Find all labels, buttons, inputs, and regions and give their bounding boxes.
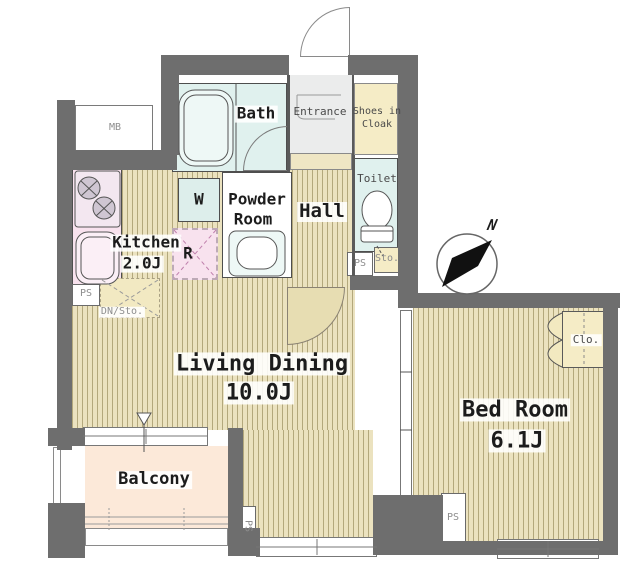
window-entry-marker bbox=[137, 413, 151, 452]
sliding-door-ticks bbox=[400, 372, 412, 430]
powder-sink-icon bbox=[229, 231, 285, 276]
closet-label: Clo. bbox=[571, 334, 602, 346]
toilet-icon bbox=[361, 191, 393, 256]
living-dining-size-label: 10.0J bbox=[224, 381, 294, 404]
shoes-in-cloak-label-line1: Shoes in bbox=[351, 107, 403, 118]
bath-label: Bath bbox=[235, 106, 278, 123]
powder-room-label-line1: Powder bbox=[226, 192, 288, 209]
balcony-label: Balcony bbox=[116, 471, 192, 489]
pipe-space-label-balcony: PS bbox=[240, 520, 255, 532]
linework-overlay bbox=[0, 0, 640, 569]
powder-room-label-line2: Room bbox=[232, 212, 275, 229]
stove-icon bbox=[75, 171, 120, 227]
kitchen-label: Kitchen bbox=[110, 235, 181, 252]
meter-box-label: MB bbox=[107, 123, 123, 134]
hall-label: Hall bbox=[297, 202, 347, 222]
compass-icon bbox=[437, 234, 497, 294]
bedroom-label: Bed Room bbox=[460, 398, 570, 421]
shoes-in-cloak-label-line2: Cloak bbox=[360, 120, 394, 131]
storage-label: Sto. bbox=[373, 254, 401, 265]
toilet-label: Toilet bbox=[355, 173, 399, 185]
washing-machine-label: W bbox=[192, 192, 206, 209]
oven-storage-label: DN/Sto. bbox=[99, 307, 145, 318]
living-dining-label: Living Dining bbox=[174, 352, 350, 375]
floor-plan: MB Bath Entrance Shoes in Cloak Toilet H… bbox=[0, 0, 640, 569]
refrigerator-label: R bbox=[181, 246, 195, 263]
bedroom-size-label: 6.1J bbox=[489, 429, 546, 452]
entrance-label: Entrance bbox=[292, 106, 349, 118]
kitchen-size-label: 2.0J bbox=[121, 256, 164, 273]
bathtub-icon bbox=[179, 84, 236, 171]
pipe-space-label-kitchen: PS bbox=[78, 289, 94, 300]
pipe-space-label-bedroom: PS bbox=[445, 513, 461, 524]
balcony-railing bbox=[85, 508, 228, 530]
pipe-space-label-toilet: PS bbox=[352, 259, 368, 270]
